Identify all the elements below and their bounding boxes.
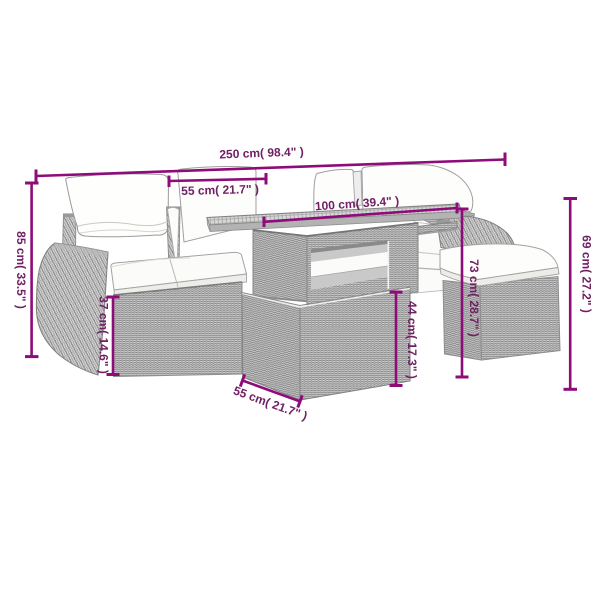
- svg-text:85 cm( 33.5" ): 85 cm( 33.5" ): [14, 231, 28, 309]
- svg-text:69 cm( 27.2" ): 69 cm( 27.2" ): [580, 235, 594, 313]
- svg-text:55 cm( 21.7" ): 55 cm( 21.7" ): [181, 182, 259, 198]
- svg-text:44 cm( 17.3" ): 44 cm( 17.3" ): [405, 301, 419, 379]
- svg-text:73 cm( 28.7" ): 73 cm( 28.7" ): [467, 259, 481, 337]
- svg-text:37 cm( 14.6" ): 37 cm( 14.6" ): [97, 296, 111, 374]
- svg-text:250 cm( 98.4" ): 250 cm( 98.4" ): [219, 145, 304, 162]
